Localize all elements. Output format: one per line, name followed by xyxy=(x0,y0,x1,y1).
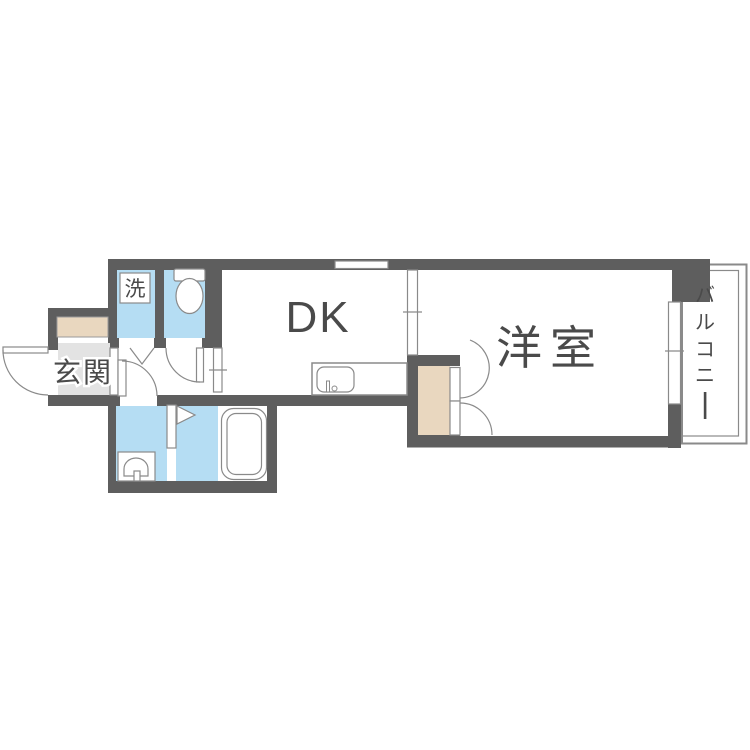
western-window xyxy=(669,302,681,404)
wall-closet-bottom xyxy=(407,435,460,445)
bathroom-folding-door-leaf xyxy=(167,405,176,448)
western-room-label: 洋室 xyxy=(496,322,604,374)
balcony-label-char-5-vertical-dash xyxy=(704,392,707,419)
shoe-cabinet xyxy=(57,317,108,337)
balcony-label-char-3: コ xyxy=(695,339,715,361)
bathtub-inner-icon xyxy=(227,414,262,475)
wall-closet-top xyxy=(407,355,460,366)
floor-plan-canvas: 玄関 洗 DK 洋室 バ ル コ ニ xyxy=(0,0,750,750)
entrance-label: 玄関 xyxy=(53,357,113,388)
balcony-label-char-4: ニ xyxy=(695,365,715,387)
closet-interior xyxy=(418,366,450,435)
wall-left-upper xyxy=(108,259,118,348)
wall-bath-left xyxy=(108,395,116,493)
bathroom-door-opening xyxy=(120,395,157,406)
washroom-door-leaf xyxy=(118,360,126,396)
floor-plan: 玄関 洗 DK 洋室 バ ル コ ニ xyxy=(0,0,750,750)
wall-top xyxy=(108,259,681,270)
balcony-label-char-1: バ xyxy=(695,285,715,307)
wall-hall-bottom xyxy=(48,395,407,406)
washbasin-pedestal-icon xyxy=(134,471,140,481)
wall-closet-left xyxy=(407,355,418,447)
laundry-folding-door xyxy=(130,348,154,364)
wall-entrance-top xyxy=(48,308,117,317)
closet-door-leaf-top xyxy=(450,368,460,402)
wall-bath-right xyxy=(267,405,277,493)
wall-laundry-toilet-divider xyxy=(155,270,165,348)
dk-label: DK xyxy=(285,293,350,342)
kitchen-drain-icon xyxy=(332,386,337,391)
closet-door-leaf-bottom xyxy=(450,401,460,435)
dk-window xyxy=(335,261,388,269)
toilet-door-leaf xyxy=(197,348,204,382)
entrance-door-arc xyxy=(3,350,48,395)
wall-bath-bottom xyxy=(108,481,277,493)
balcony-label-char-2: ル xyxy=(695,312,715,334)
closet-door-arc-top xyxy=(460,340,489,398)
washroom-door-arc xyxy=(122,361,157,396)
entrance-door-leaf xyxy=(3,347,48,353)
toilet-door-opening xyxy=(166,338,202,348)
toilet-door-arc xyxy=(166,348,200,382)
kitchen-faucet-icon xyxy=(327,381,330,392)
wall-toilet-right xyxy=(205,259,222,348)
laundry-door-opening xyxy=(119,338,154,348)
toilet-bowl-icon xyxy=(176,279,203,314)
laundry-label: 洗 xyxy=(125,278,146,301)
closet-door-arc-bottom xyxy=(460,403,492,435)
